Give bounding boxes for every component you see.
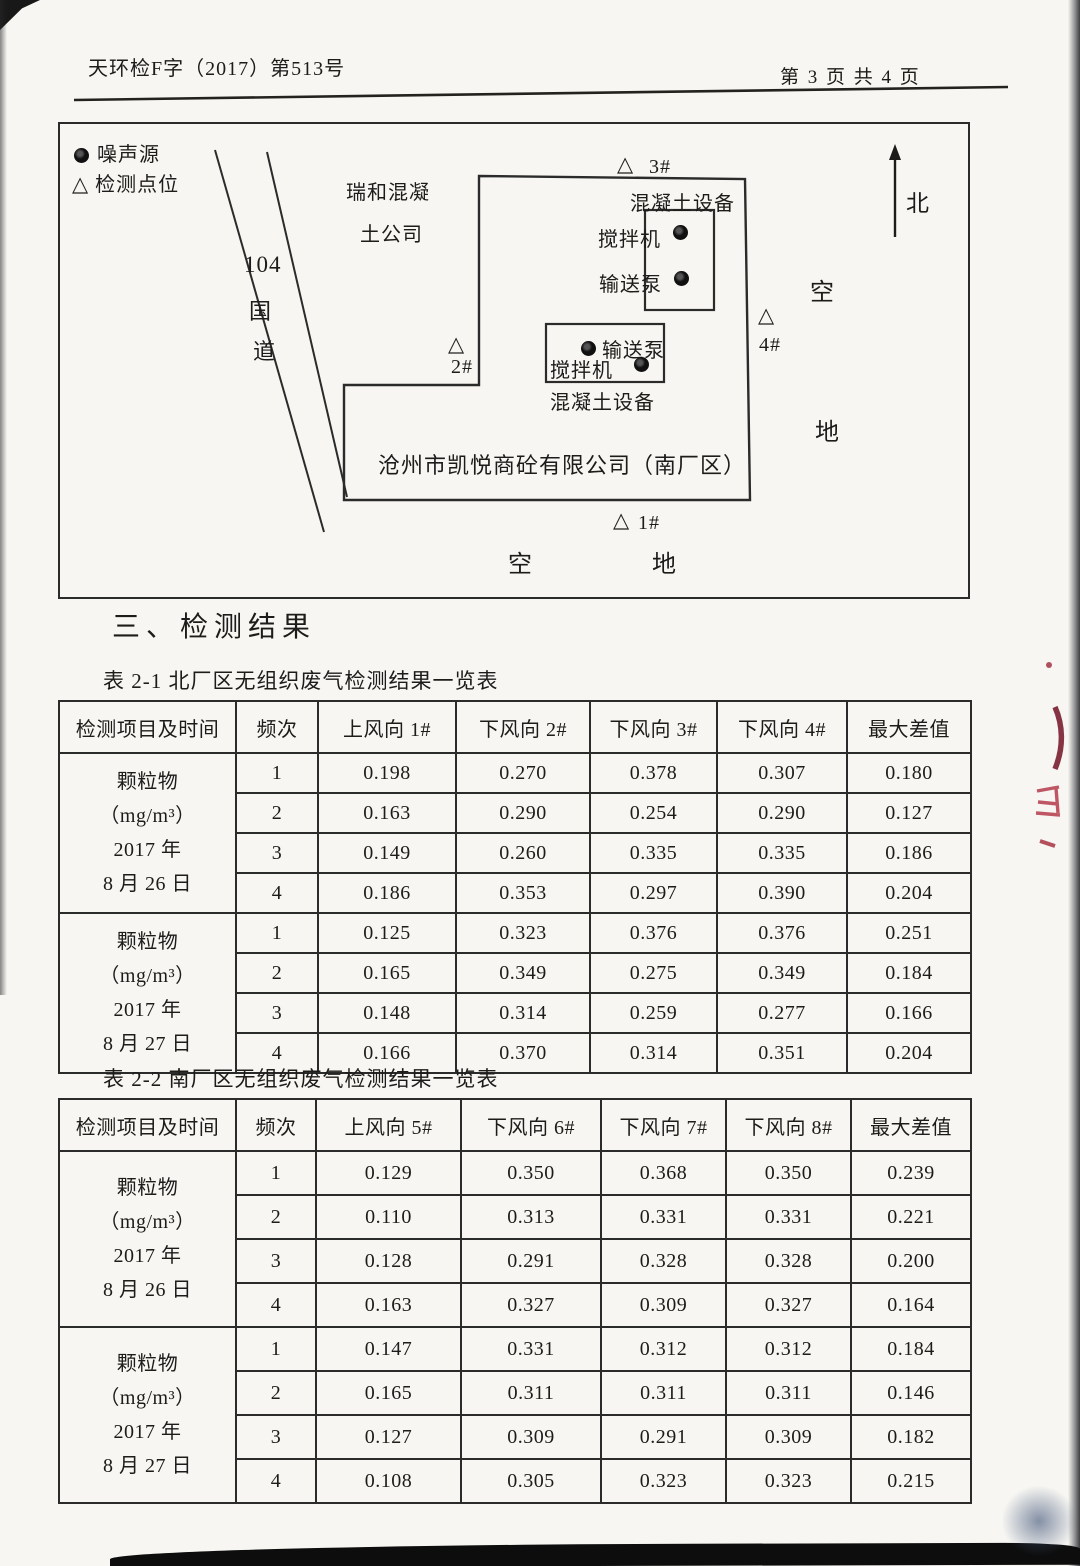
value-cell: 0.291 xyxy=(601,1415,726,1459)
column-header: 上风向 5# xyxy=(316,1099,461,1151)
value-cell: 0.327 xyxy=(461,1283,601,1327)
page-number: 第 3 页 共 4 页 xyxy=(780,62,921,89)
empty-land-label: 空 xyxy=(508,544,533,579)
monitor-point-label: 4# xyxy=(759,334,781,357)
value-cell: 0.163 xyxy=(318,793,456,833)
value-cell: 0.350 xyxy=(726,1151,851,1195)
value-cell: 0.368 xyxy=(601,1151,726,1195)
scan-edge-shadow xyxy=(0,0,7,995)
value-cell: 0.312 xyxy=(726,1327,851,1371)
frequency-cell: 3 xyxy=(236,833,318,873)
value-cell: 0.165 xyxy=(316,1371,461,1415)
value-cell: 0.270 xyxy=(456,753,590,793)
monitor-point-label: 3# xyxy=(649,156,671,179)
frequency-cell: 1 xyxy=(236,1327,316,1371)
column-header: 最大差值 xyxy=(851,1099,971,1151)
value-cell: 0.277 xyxy=(717,993,847,1033)
monitor-point-label: 1# xyxy=(638,512,660,535)
value-cell: 0.180 xyxy=(847,753,971,793)
table-row: 颗粒物（mg/m³）2017 年8 月 27 日10.1470.3310.312… xyxy=(59,1327,971,1371)
value-cell: 0.254 xyxy=(590,793,717,833)
column-header: 最大差值 xyxy=(847,701,971,753)
value-cell: 0.166 xyxy=(847,993,971,1033)
monitor-point-icon: △ xyxy=(448,334,464,355)
value-cell: 0.376 xyxy=(717,913,847,953)
value-cell: 0.327 xyxy=(726,1283,851,1327)
diagram-linework xyxy=(60,124,968,597)
value-cell: 0.221 xyxy=(851,1195,971,1239)
item-and-time-cell: 颗粒物（mg/m³）2017 年8 月 26 日 xyxy=(59,1151,236,1327)
column-header: 检测项目及时间 xyxy=(59,701,236,753)
value-cell: 0.328 xyxy=(726,1239,851,1283)
value-cell: 0.331 xyxy=(601,1195,726,1239)
frequency-cell: 1 xyxy=(236,1151,316,1195)
south-equipment-label: 混凝土设备 xyxy=(550,386,655,415)
value-cell: 0.128 xyxy=(316,1239,461,1283)
value-cell: 0.376 xyxy=(590,913,717,953)
item-and-time-cell: 颗粒物（mg/m³）2017 年8 月 27 日 xyxy=(59,913,236,1073)
value-cell: 0.311 xyxy=(601,1371,726,1415)
value-cell: 0.314 xyxy=(456,993,590,1033)
value-cell: 0.186 xyxy=(847,833,971,873)
south-plant-results-table: 检测项目及时间频次上风向 5#下风向 6#下风向 7#下风向 8#最大差值 颗粒… xyxy=(58,1098,972,1504)
frequency-cell: 1 xyxy=(236,913,318,953)
scanned-report-page: 天环检F字（2017）第513号 第 3 页 共 4 页 噪声源 △检测点位 1… xyxy=(0,0,1080,1566)
value-cell: 0.351 xyxy=(717,1033,847,1073)
table1-caption: 表 2-1 北厂区无组织废气检测结果一览表 xyxy=(103,665,499,695)
item-and-time-cell: 颗粒物（mg/m³）2017 年8 月 26 日 xyxy=(59,753,236,913)
value-cell: 0.110 xyxy=(316,1195,461,1239)
column-header: 下风向 8# xyxy=(726,1099,851,1151)
value-cell: 0.259 xyxy=(590,993,717,1033)
value-cell: 0.125 xyxy=(318,913,456,953)
road-name-char: 国 xyxy=(249,294,272,326)
value-cell: 0.349 xyxy=(456,953,590,993)
value-cell: 0.204 xyxy=(847,1033,971,1073)
value-cell: 0.198 xyxy=(318,753,456,793)
value-cell: 0.129 xyxy=(316,1151,461,1195)
value-cell: 0.305 xyxy=(461,1459,601,1503)
value-cell: 0.323 xyxy=(456,913,590,953)
monitor-point-label: 2# xyxy=(451,356,473,379)
frequency-cell: 3 xyxy=(236,993,318,1033)
value-cell: 0.260 xyxy=(456,833,590,873)
column-header: 下风向 3# xyxy=(590,701,717,753)
document-number: 天环检F字（2017）第513号 xyxy=(88,52,345,81)
empty-land-label: 空 xyxy=(810,272,835,307)
frequency-cell: 3 xyxy=(236,1415,316,1459)
value-cell: 0.328 xyxy=(601,1239,726,1283)
legend-noise-source: 噪声源 xyxy=(74,138,160,167)
value-cell: 0.184 xyxy=(847,953,971,993)
value-cell: 0.307 xyxy=(717,753,847,793)
north-pump-label: 输送泵 xyxy=(599,268,662,297)
value-cell: 0.164 xyxy=(851,1283,971,1327)
value-cell: 0.291 xyxy=(461,1239,601,1283)
value-cell: 0.297 xyxy=(590,873,717,913)
noise-source-icon xyxy=(74,148,89,163)
column-header: 上风向 1# xyxy=(318,701,456,753)
value-cell: 0.147 xyxy=(316,1327,461,1371)
frequency-cell: 4 xyxy=(236,1459,316,1503)
north-equipment-label: 混凝土设备 xyxy=(630,187,735,216)
column-header: 下风向 4# xyxy=(717,701,847,753)
value-cell: 0.149 xyxy=(318,833,456,873)
column-header: 下风向 7# xyxy=(601,1099,726,1151)
north-mixer-label: 搅拌机 xyxy=(598,223,661,252)
frequency-cell: 4 xyxy=(236,873,318,913)
value-cell: 0.275 xyxy=(590,953,717,993)
value-cell: 0.251 xyxy=(847,913,971,953)
value-cell: 0.350 xyxy=(461,1151,601,1195)
value-cell: 0.335 xyxy=(590,833,717,873)
frequency-cell: 2 xyxy=(236,1371,316,1415)
monitor-point-icon: △ xyxy=(72,172,89,196)
value-cell: 0.311 xyxy=(726,1371,851,1415)
column-header: 频次 xyxy=(236,1099,316,1151)
frequency-cell: 2 xyxy=(236,793,318,833)
item-and-time-cell: 颗粒物（mg/m³）2017 年8 月 27 日 xyxy=(59,1327,236,1503)
value-cell: 0.148 xyxy=(318,993,456,1033)
value-cell: 0.165 xyxy=(318,953,456,993)
north-arrow-head xyxy=(889,144,901,160)
site-map-diagram: 噪声源 △检测点位 104 国 道 瑞和混凝 土公司 混凝土设备 搅拌机 输送泵… xyxy=(58,122,970,599)
value-cell: 0.309 xyxy=(726,1415,851,1459)
empty-land-label: 地 xyxy=(652,544,677,579)
table-row: 颗粒物（mg/m³）2017 年8 月 26 日10.1290.3500.368… xyxy=(59,1151,971,1195)
column-header: 下风向 2# xyxy=(456,701,590,753)
column-header: 下风向 6# xyxy=(461,1099,601,1151)
value-cell: 0.331 xyxy=(461,1327,601,1371)
value-cell: 0.184 xyxy=(851,1327,971,1371)
value-cell: 0.127 xyxy=(847,793,971,833)
value-cell: 0.312 xyxy=(601,1327,726,1371)
value-cell: 0.239 xyxy=(851,1151,971,1195)
monitor-point-icon: △ xyxy=(758,305,774,326)
monitor-point-icon: △ xyxy=(613,510,629,531)
header-row: 检测项目及时间频次上风向 5#下风向 6#下风向 7#下风向 8#最大差值 xyxy=(59,1099,971,1151)
monitor-point-icon: △ xyxy=(617,154,633,175)
value-cell: 0.146 xyxy=(851,1371,971,1415)
value-cell: 0.378 xyxy=(590,753,717,793)
red-ink-mark xyxy=(1025,645,1080,865)
value-cell: 0.309 xyxy=(601,1283,726,1327)
value-cell: 0.290 xyxy=(717,793,847,833)
column-header: 检测项目及时间 xyxy=(59,1099,236,1151)
frequency-cell: 2 xyxy=(236,953,318,993)
noise-source-icon xyxy=(634,357,649,372)
north-label: 北 xyxy=(906,184,930,218)
value-cell: 0.182 xyxy=(851,1415,971,1459)
value-cell: 0.335 xyxy=(717,833,847,873)
south-mixer-label: 搅拌机 xyxy=(550,354,613,383)
header-row: 检测项目及时间频次上风向 1#下风向 2#下风向 3#下风向 4#最大差值 xyxy=(59,701,971,753)
noise-source-icon xyxy=(674,271,689,286)
value-cell: 0.311 xyxy=(461,1371,601,1415)
value-cell: 0.313 xyxy=(461,1195,601,1239)
legend-monitor-point: △检测点位 xyxy=(72,168,179,197)
value-cell: 0.200 xyxy=(851,1239,971,1283)
value-cell: 0.204 xyxy=(847,873,971,913)
frequency-cell: 2 xyxy=(236,1195,316,1239)
value-cell: 0.215 xyxy=(851,1459,971,1503)
table-row: 颗粒物（mg/m³）2017 年8 月 27 日10.1250.3230.376… xyxy=(59,913,971,953)
scan-edge-shadow xyxy=(110,1543,1080,1566)
value-cell: 0.163 xyxy=(316,1283,461,1327)
noise-source-icon xyxy=(673,225,688,240)
ink-smudge xyxy=(1000,1484,1078,1558)
road-number-label: 104 xyxy=(244,252,282,278)
company-name-label: 沧州市凯悦商砼有限公司（南厂区） xyxy=(378,448,746,480)
value-cell: 0.390 xyxy=(717,873,847,913)
value-cell: 0.349 xyxy=(717,953,847,993)
north-plant-results-table: 检测项目及时间频次上风向 1#下风向 2#下风向 3#下风向 4#最大差值 颗粒… xyxy=(58,700,972,1074)
value-cell: 0.331 xyxy=(726,1195,851,1239)
value-cell: 0.127 xyxy=(316,1415,461,1459)
frequency-cell: 1 xyxy=(236,753,318,793)
section-title: 三、检测结果 xyxy=(112,605,316,645)
table2-caption: 表 2-2 南厂区无组织废气检测结果一览表 xyxy=(103,1063,499,1093)
value-cell: 0.353 xyxy=(456,873,590,913)
table-row: 颗粒物（mg/m³）2017 年8 月 26 日10.1980.2700.378… xyxy=(59,753,971,793)
value-cell: 0.314 xyxy=(590,1033,717,1073)
road-line xyxy=(267,152,347,497)
value-cell: 0.323 xyxy=(726,1459,851,1503)
road-name-char: 道 xyxy=(253,334,276,366)
column-header: 频次 xyxy=(236,701,318,753)
empty-land-label: 地 xyxy=(815,412,840,447)
neighbor-company-label: 土公司 xyxy=(360,218,423,247)
value-cell: 0.108 xyxy=(316,1459,461,1503)
value-cell: 0.323 xyxy=(601,1459,726,1503)
neighbor-company-label: 瑞和混凝 xyxy=(346,176,430,205)
value-cell: 0.309 xyxy=(461,1415,601,1459)
frequency-cell: 3 xyxy=(236,1239,316,1283)
value-cell: 0.186 xyxy=(318,873,456,913)
frequency-cell: 4 xyxy=(236,1283,316,1327)
value-cell: 0.290 xyxy=(456,793,590,833)
